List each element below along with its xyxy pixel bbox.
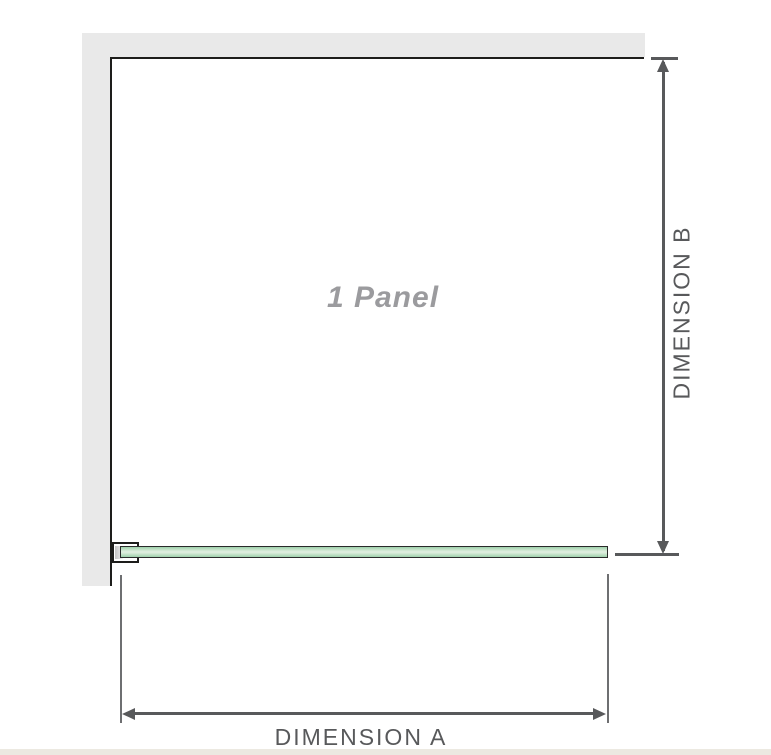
dimension-a-line (131, 712, 597, 715)
glass-panel-bar (120, 546, 608, 558)
arrow-right-icon (593, 708, 606, 720)
panel-left-border (110, 57, 112, 586)
extension-line-left (120, 575, 123, 723)
dimension-b-line (662, 62, 665, 551)
bottom-edge-strip (0, 749, 771, 755)
dimension-b-label: DIMENSION B (669, 213, 694, 413)
wall-side-strip (82, 33, 110, 586)
shower-panel-diagram: 1 Panel DIMENSION B DIMENSION A (0, 0, 771, 755)
extension-line-right (607, 574, 610, 723)
arrow-down-icon (657, 541, 669, 554)
panel-count-label: 1 Panel (263, 281, 503, 315)
dimension-b-bottom-tick (615, 553, 679, 556)
wall-top-band (82, 33, 645, 57)
arrow-left-icon (122, 708, 135, 720)
panel-top-border (110, 57, 644, 59)
arrow-up-icon (657, 59, 669, 72)
dimension-a-label: DIMENSION A (211, 724, 511, 751)
